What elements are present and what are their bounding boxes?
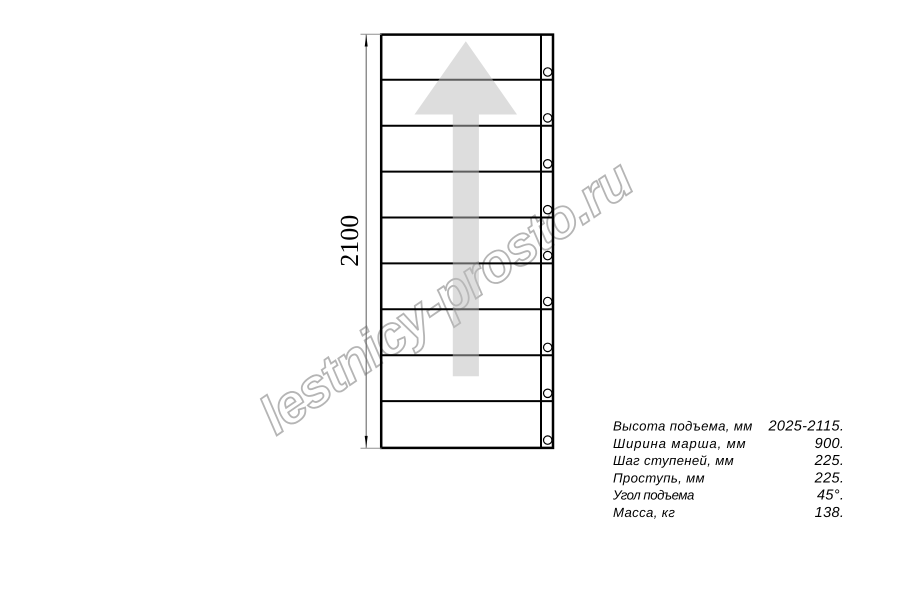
svg-text:2100: 2100 (335, 215, 364, 267)
svg-text:138.: 138. (815, 505, 845, 521)
svg-text:45°.: 45°. (817, 488, 844, 504)
svg-text:Высота подъема, мм: Высота подъема, мм (613, 419, 753, 434)
svg-text:Проступь, мм: Проступь, мм (613, 470, 705, 485)
svg-text:Масса, кг: Масса, кг (613, 505, 675, 520)
svg-text:2025-2115.: 2025-2115. (768, 419, 845, 435)
svg-text:Шаг ступеней, мм: Шаг ступеней, мм (613, 453, 734, 468)
svg-text:225.: 225. (814, 453, 845, 469)
svg-text:225.: 225. (814, 470, 845, 486)
svg-text:Угол подъема: Угол подъема (612, 488, 694, 503)
svg-text:900.: 900. (815, 436, 845, 452)
svg-text:Ширина марша, мм: Ширина марша, мм (613, 436, 746, 451)
